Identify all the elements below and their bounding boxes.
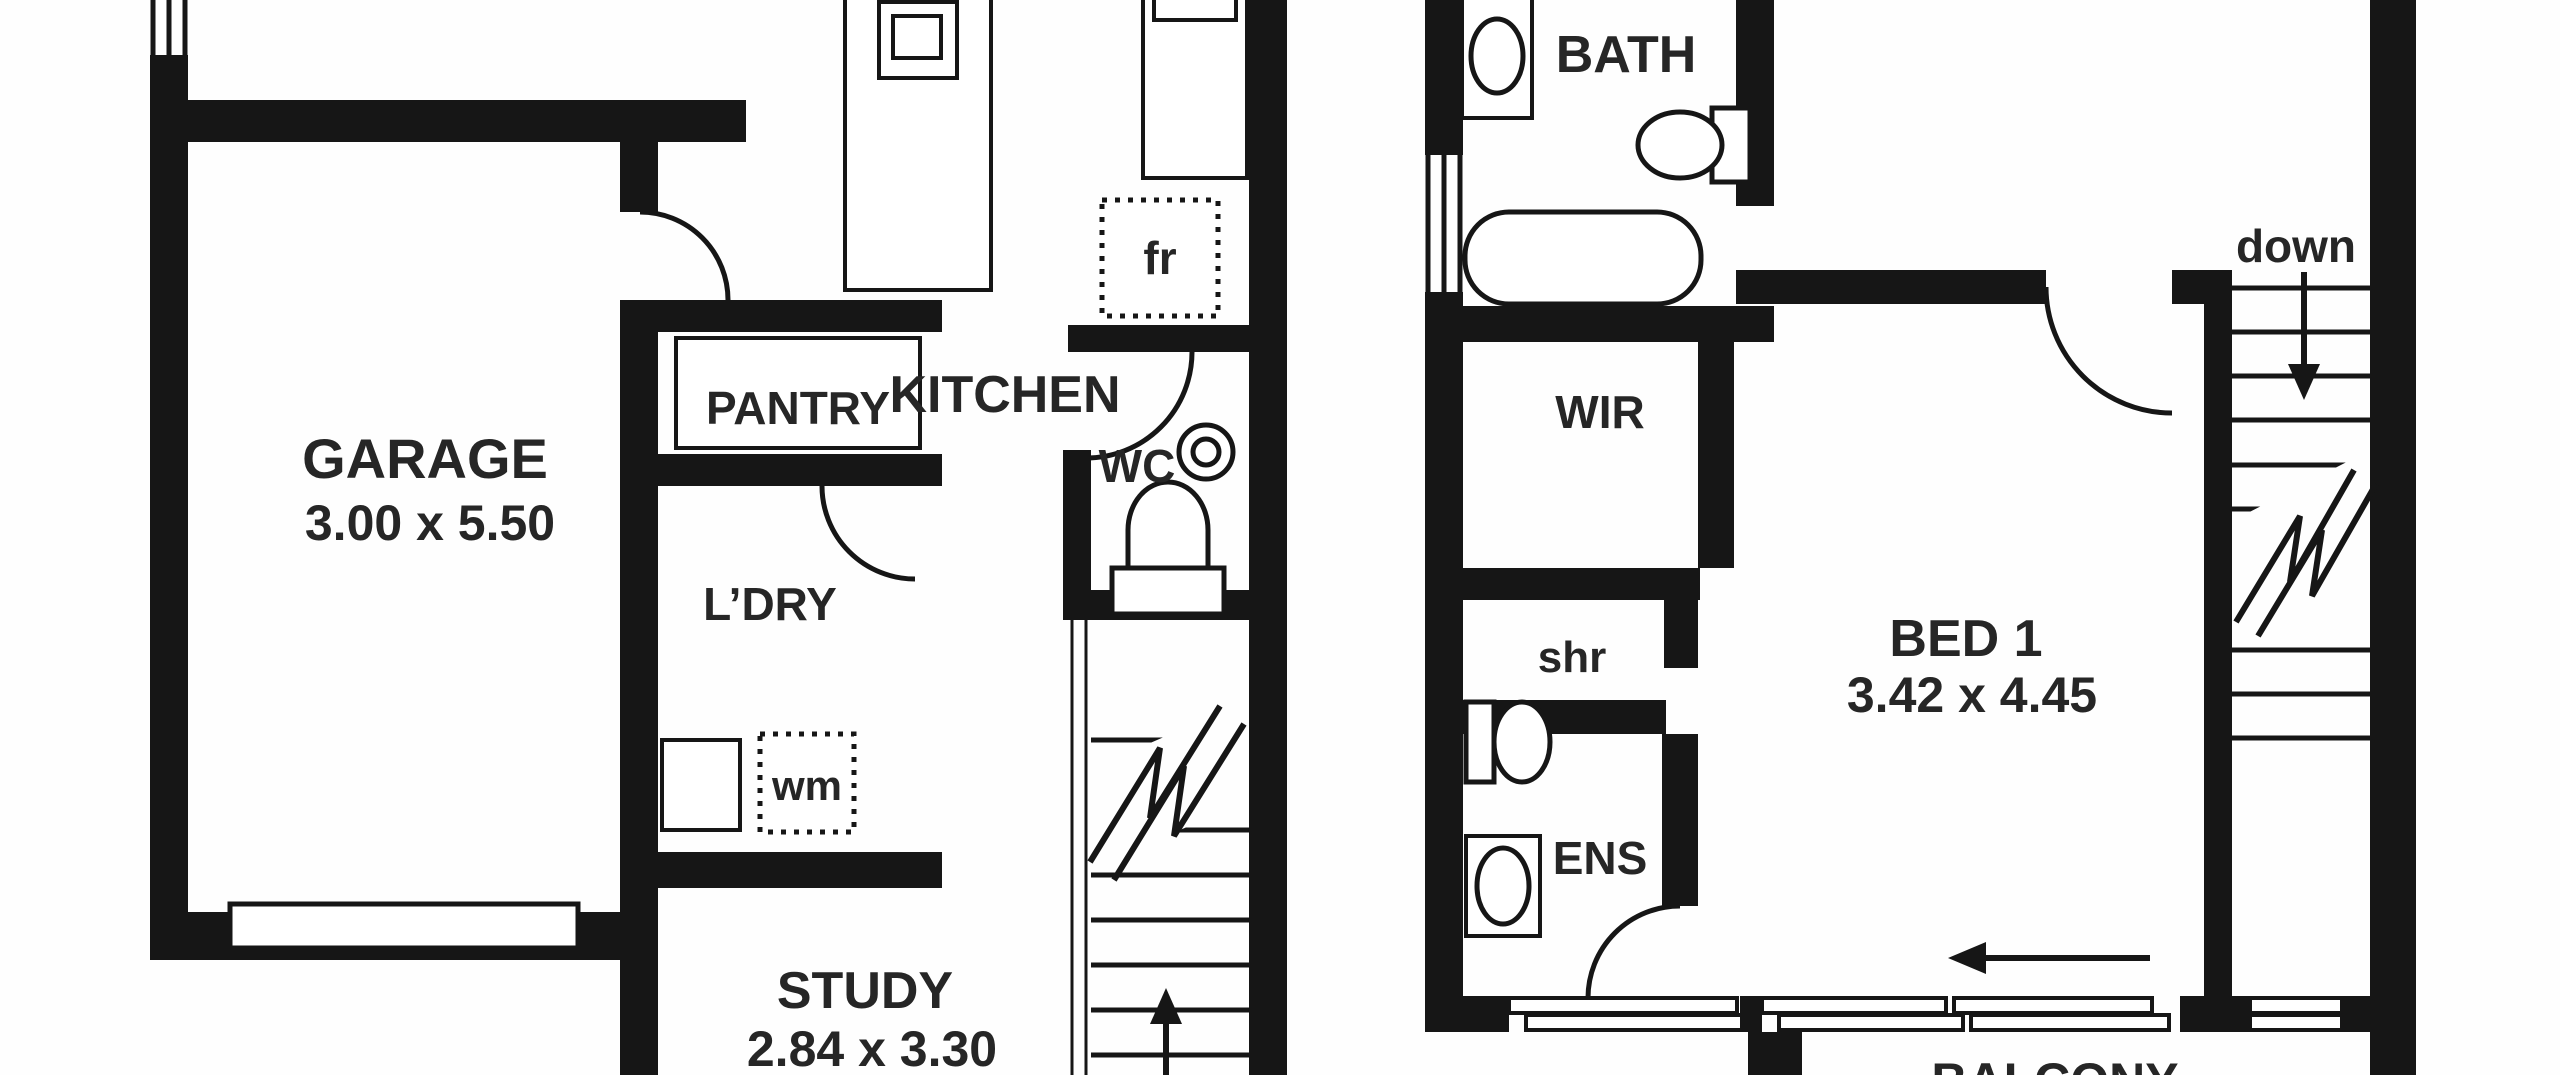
upper-left-wall-top — [1425, 0, 1463, 155]
balcony-window2-icon — [2250, 998, 2342, 1030]
bath-window-icon — [1428, 155, 1460, 292]
bathtub-icon — [1465, 212, 1701, 304]
ensuite-toilet-bowl-icon — [1477, 848, 1529, 924]
garage-door-panel-icon — [230, 904, 578, 948]
ground-right-outer-wall — [1249, 0, 1287, 1075]
stairs-down — [2232, 272, 2376, 738]
wc-left-wall — [1063, 450, 1091, 596]
ensuite-vanity-icon — [1466, 702, 1494, 782]
wc-toilet-cistern-icon — [1112, 568, 1224, 614]
washing-machine-label: wm — [771, 762, 842, 809]
pantry-label: PANTRY — [706, 382, 890, 434]
kitchen-counter-icon — [1143, 0, 1247, 178]
ensuite-basin-icon — [1494, 702, 1550, 782]
balcony-divider-wall — [1748, 1032, 1802, 1075]
wir-right-wall — [1698, 306, 1734, 568]
ensuite-label: ENS — [1553, 832, 1648, 884]
study-dims: 2.84 x 3.30 — [747, 1021, 997, 1075]
stairwell-inner-wall — [2204, 278, 2232, 1032]
slider-arrow-head — [1948, 942, 1986, 974]
garage-door-arc — [640, 212, 728, 300]
bottom-wall-left — [1425, 996, 1509, 1032]
bed1-door-arc — [2046, 287, 2172, 413]
garage-left-wall — [150, 55, 188, 955]
laundry-trough-icon — [662, 740, 740, 830]
upper-floor-plan: BATH WIR shr ENS BED 1 3.42 x 4.45 down … — [1425, 0, 2416, 1075]
sliding-door-icon — [1762, 998, 2169, 1030]
garage-label: GARAGE — [302, 427, 548, 490]
wir-label: WIR — [1555, 386, 1644, 438]
garage-dims: 3.00 x 5.50 — [305, 495, 555, 551]
bottom-wall-corner — [2342, 996, 2416, 1032]
fridge-label: fr — [1143, 232, 1176, 284]
kitchen-sink-bowl-icon — [893, 16, 941, 58]
laundry-door-arc — [822, 486, 915, 579]
floorplan-page: GARAGE 3.00 x 5.50 PANTRY L’DRY wm KITCH… — [0, 0, 2560, 1075]
study-label: STUDY — [777, 962, 953, 1020]
cooktop-icon — [1154, 0, 1236, 20]
floorplan-drawing: GARAGE 3.00 x 5.50 PANTRY L’DRY wm KITCH… — [0, 0, 2560, 1075]
down-label: down — [2236, 220, 2356, 272]
kitchen-label: KITCHEN — [889, 366, 1120, 424]
pantry-top-wall — [620, 300, 942, 332]
bath-basin-icon — [1471, 19, 1523, 93]
wc-basin-drain-icon — [1193, 439, 1219, 465]
wc-toilet-bowl-icon — [1128, 482, 1208, 568]
up-arrow-head — [1150, 988, 1182, 1024]
bottom-wall-right — [2180, 996, 2250, 1032]
bath-toilet-bowl-icon — [1638, 112, 1722, 178]
bottom-wall-mid — [1740, 996, 1762, 1032]
pantry-bottom-wall — [620, 454, 942, 486]
upper-right-outer-wall — [2370, 0, 2416, 1075]
laundry-label: L’DRY — [703, 578, 837, 630]
stairs-up — [1072, 620, 1249, 1075]
bed1-top-wall — [1736, 270, 2046, 304]
down-arrow-head — [2288, 364, 2320, 400]
garage-window-icon — [153, 0, 185, 55]
ensuite-door-arc — [1588, 906, 1680, 998]
garage-bottom-wall-left — [150, 912, 230, 960]
garage-top-wall — [150, 100, 746, 142]
bath-label: BATH — [1556, 26, 1697, 84]
ground-floor-plan: GARAGE 3.00 x 5.50 PANTRY L’DRY wm KITCH… — [150, 0, 1287, 1075]
bed1-dims: 3.42 x 4.45 — [1847, 667, 2097, 723]
garage-bottom-wall-right — [578, 912, 658, 960]
balcony-window-icon — [1509, 998, 1754, 1030]
ensuite-bed-wall — [1662, 734, 1698, 906]
shower-label: shr — [1538, 633, 1606, 682]
garage-right-wall-upper — [620, 142, 658, 212]
wc-label: WC — [1099, 440, 1176, 492]
wc-top-wall — [1068, 325, 1249, 352]
laundry-bottom-wall — [620, 852, 942, 888]
bed1-label: BED 1 — [1889, 610, 2042, 668]
balcony-label: BALCONY — [1931, 1053, 2178, 1075]
upper-left-wall-main — [1425, 292, 1463, 1032]
shower-right-wall — [1664, 568, 1698, 668]
